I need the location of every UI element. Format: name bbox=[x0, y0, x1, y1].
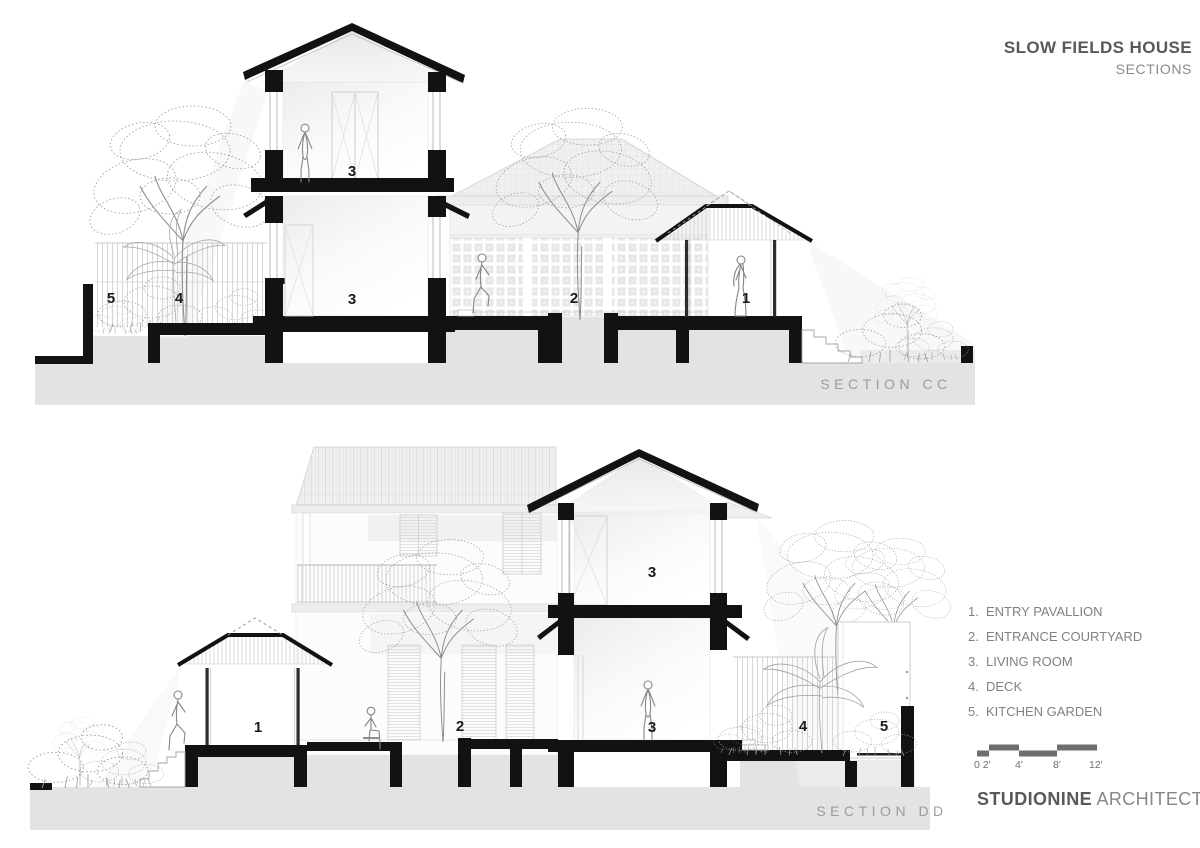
dd-deck-slab bbox=[726, 750, 850, 761]
legend-label: LIVING ROOM bbox=[986, 654, 1073, 669]
callout-living-lower: 3 bbox=[348, 291, 356, 308]
section-cc-drawing: 5 4 3 3 2 1 SECTION CC bbox=[35, 23, 975, 405]
dd-pavilion-plinth bbox=[185, 745, 307, 757]
person-in-pavilion bbox=[734, 256, 746, 316]
floor-slab bbox=[548, 605, 742, 618]
pavilion-column bbox=[206, 668, 209, 745]
pavilion-column bbox=[297, 668, 300, 745]
callout-entrance-courtyard: 2 bbox=[570, 290, 578, 307]
section-dd-label: SECTION DD bbox=[816, 803, 947, 819]
cc-deck-slab bbox=[148, 323, 269, 335]
section-dd-drawing: 1 2 3 3 4 5 SECTION DD bbox=[28, 447, 954, 830]
legend-number: 4. bbox=[968, 679, 986, 694]
legend-item-deck: 4. DECK bbox=[968, 679, 1142, 704]
room-legend: 1. ENTRY PAVALLION 2. ENTRANCE COURTYARD… bbox=[968, 604, 1142, 729]
firm-signature: STUDIONINE ARCHITECTS bbox=[977, 789, 1200, 810]
callout-entrance-courtyard: 2 bbox=[456, 718, 464, 735]
callout-kitchen-garden: 5 bbox=[107, 290, 115, 307]
pavilion-column bbox=[773, 240, 776, 317]
ground-slab bbox=[253, 316, 455, 332]
cc-garden-fence bbox=[95, 243, 267, 327]
project-title: SLOW FIELDS HOUSE bbox=[1004, 38, 1192, 58]
scale-tick: 12' bbox=[1089, 759, 1103, 771]
legend-item-living-room: 3. LIVING ROOM bbox=[968, 654, 1142, 679]
callout-living-upper: 3 bbox=[648, 564, 656, 581]
scale-tick: 0 2' bbox=[974, 759, 991, 771]
firm-suffix: ARCHITECTS bbox=[1096, 789, 1200, 809]
scale-tick: 4' bbox=[1015, 759, 1023, 771]
cc-retaining-wall bbox=[83, 284, 93, 363]
callout-deck: 4 bbox=[175, 290, 184, 307]
callout-entry-pavilion: 1 bbox=[742, 290, 750, 307]
callout-kitchen-garden: 5 bbox=[880, 718, 888, 735]
legend-item-entry-pavilion: 1. ENTRY PAVALLION bbox=[968, 604, 1142, 629]
legend-item-entrance-courtyard: 2. ENTRANCE COURTYARD bbox=[968, 629, 1142, 654]
legend-number: 2. bbox=[968, 629, 986, 644]
legend-number: 3. bbox=[968, 654, 986, 669]
floor-slab bbox=[251, 178, 454, 192]
legend-label: DECK bbox=[986, 679, 1022, 694]
dd-gate bbox=[838, 622, 910, 758]
scale-bar: 0 2' 4' 8' 12' bbox=[977, 744, 1107, 776]
callout-living-lower: 3 bbox=[648, 719, 656, 736]
legend-label: ENTRANCE COURTYARD bbox=[986, 629, 1142, 644]
callout-deck: 4 bbox=[799, 718, 808, 735]
firm-name: STUDIONINE bbox=[977, 789, 1092, 809]
title-block: SLOW FIELDS HOUSE SECTIONS bbox=[1004, 38, 1192, 77]
dd-retaining-wall bbox=[901, 706, 914, 787]
legend-label: ENTRY PAVALLION bbox=[986, 604, 1103, 619]
legend-number: 5. bbox=[968, 704, 986, 719]
drawing-sheet: 5 4 3 3 2 1 SECTION CC bbox=[0, 0, 1200, 848]
cc-courtyard-step bbox=[458, 310, 474, 316]
callout-entry-pavilion: 1 bbox=[254, 719, 262, 736]
legend-label: KITCHEN GARDEN bbox=[986, 704, 1102, 719]
legend-item-kitchen-garden: 5. KITCHEN GARDEN bbox=[968, 704, 1142, 729]
cc-main-house-cut bbox=[243, 23, 470, 363]
dd-main-house-cut bbox=[527, 449, 759, 787]
scale-tick: 8' bbox=[1053, 759, 1061, 771]
sheet-title: SECTIONS bbox=[1004, 61, 1192, 77]
pavilion-column bbox=[685, 240, 688, 317]
ground-slab bbox=[548, 740, 742, 752]
section-cc-label: SECTION CC bbox=[820, 376, 951, 392]
legend-number: 1. bbox=[968, 604, 986, 619]
callout-living-upper: 3 bbox=[348, 163, 356, 180]
cc-pavilion-plinth bbox=[676, 316, 802, 330]
balcony-railing bbox=[297, 565, 437, 603]
scale-bar-graphic bbox=[977, 744, 1102, 757]
